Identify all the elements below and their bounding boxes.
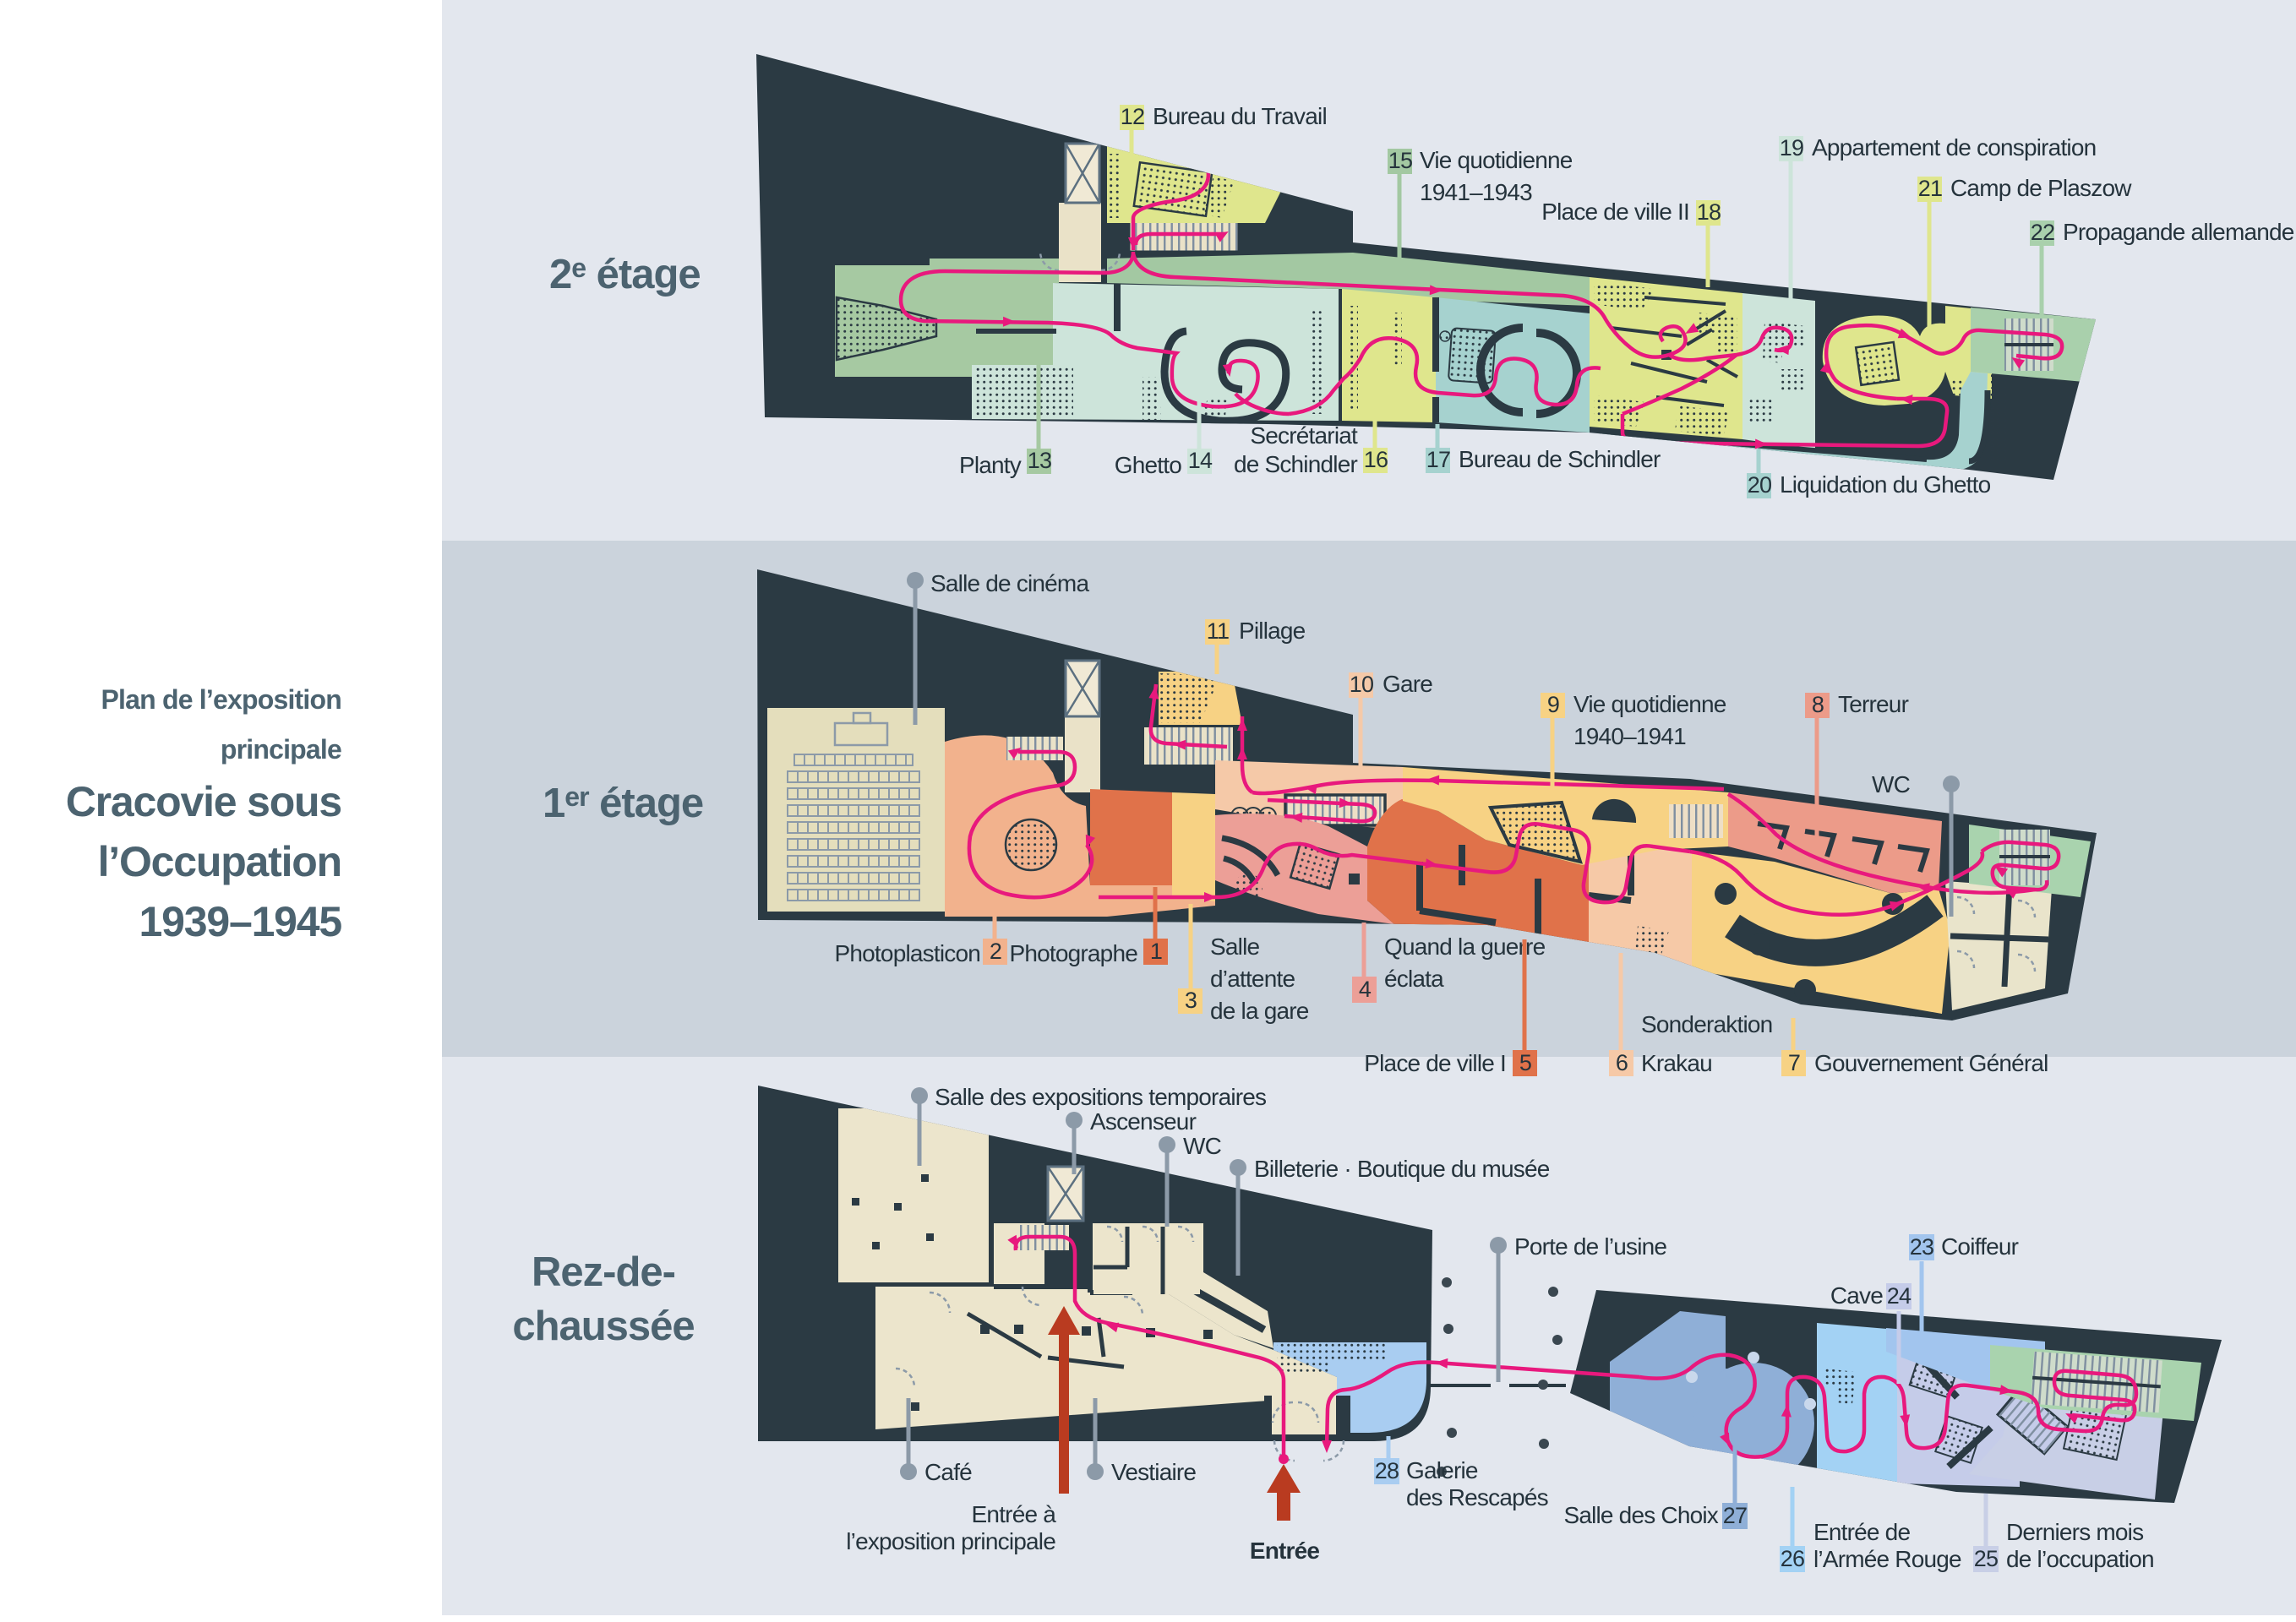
svg-text:5: 5 [1519, 1050, 1531, 1075]
svg-text:WC: WC [1183, 1133, 1222, 1159]
svg-text:éclata: éclata [1384, 966, 1444, 992]
svg-text:Cave: Cave [1830, 1282, 1883, 1309]
svg-text:26: 26 [1781, 1546, 1804, 1571]
svg-text:Billeterie · Boutique du musée: Billeterie · Boutique du musée [1254, 1156, 1550, 1182]
svg-text:14: 14 [1188, 448, 1213, 473]
svg-text:l’Armée Rouge: l’Armée Rouge [1813, 1546, 1961, 1572]
svg-text:Salle: Salle [1210, 933, 1259, 960]
svg-text:l’Occupation: l’Occupation [98, 838, 341, 885]
svg-text:Entrée: Entrée [1250, 1538, 1320, 1564]
svg-text:de la gare: de la gare [1210, 998, 1309, 1024]
svg-text:Galerie: Galerie [1406, 1457, 1478, 1483]
svg-text:8: 8 [1812, 692, 1824, 717]
svg-text:chaussée: chaussée [512, 1304, 694, 1349]
svg-text:Vie quotidienne: Vie quotidienne [1420, 147, 1573, 173]
svg-text:12: 12 [1121, 104, 1144, 129]
svg-text:Ascenseur: Ascenseur [1090, 1108, 1197, 1135]
svg-text:Salle des expositions temporai: Salle des expositions temporaires [935, 1084, 1266, 1110]
svg-text:Plan de l’exposition: Plan de l’exposition [101, 684, 341, 715]
svg-text:Coiffeur: Coiffeur [1941, 1233, 2019, 1260]
svg-text:Camp de Plaszow: Camp de Plaszow [1950, 175, 2132, 201]
svg-text:Place de ville II: Place de ville II [1541, 199, 1689, 225]
svg-text:Vestiaire: Vestiaire [1111, 1459, 1196, 1485]
svg-text:Ghetto: Ghetto [1115, 452, 1181, 478]
svg-text:Propagande allemande: Propagande allemande [2063, 219, 2294, 245]
svg-text:Terreur: Terreur [1838, 691, 1909, 717]
svg-text:17: 17 [1426, 447, 1450, 472]
svg-text:Bureau du Travail: Bureau du Travail [1153, 103, 1327, 129]
svg-text:Planty: Planty [959, 452, 1022, 478]
svg-text:23: 23 [1910, 1234, 1933, 1260]
svg-text:2: 2 [990, 939, 1001, 964]
svg-text:WC: WC [1872, 771, 1911, 797]
svg-text:Rez-de-: Rez-de- [532, 1249, 675, 1295]
svg-text:1941–1943: 1941–1943 [1420, 179, 1532, 205]
svg-text:6: 6 [1616, 1050, 1628, 1075]
svg-text:Gare: Gare [1383, 671, 1432, 697]
svg-text:de l’occupation: de l’occupation [2006, 1546, 2154, 1572]
svg-text:Quand la guerre: Quand la guerre [1384, 933, 1546, 960]
svg-text:Sonderaktion: Sonderaktion [1641, 1011, 1772, 1037]
svg-text:21: 21 [1918, 176, 1942, 201]
svg-text:19: 19 [1780, 135, 1803, 161]
svg-text:d’attente: d’attente [1210, 966, 1295, 992]
svg-text:Liquidation du Ghetto: Liquidation du Ghetto [1780, 471, 1991, 498]
svg-text:18: 18 [1697, 199, 1721, 225]
svg-text:9: 9 [1547, 692, 1559, 717]
svg-text:Vie quotidienne: Vie quotidienne [1573, 691, 1726, 717]
svg-text:Place de ville I: Place de ville I [1364, 1050, 1506, 1076]
svg-text:15: 15 [1388, 148, 1412, 173]
svg-text:16: 16 [1364, 447, 1388, 472]
svg-text:11: 11 [1207, 618, 1229, 644]
svg-text:Photoplasticon: Photoplasticon [835, 940, 980, 966]
svg-text:Krakau: Krakau [1641, 1050, 1712, 1076]
svg-text:1939–1945: 1939–1945 [139, 898, 342, 945]
svg-text:Salle de cinéma: Salle de cinéma [930, 570, 1089, 596]
svg-text:Cracovie sous: Cracovie sous [66, 778, 341, 825]
svg-text:24: 24 [1887, 1283, 1912, 1309]
svg-text:Derniers mois: Derniers mois [2006, 1519, 2143, 1545]
svg-text:1940–1941: 1940–1941 [1573, 723, 1686, 749]
svg-text:Bureau de Schindler: Bureau de Schindler [1459, 446, 1661, 472]
svg-text:principale: principale [221, 734, 341, 765]
svg-text:20: 20 [1748, 472, 1771, 498]
svg-text:de Schindler: de Schindler [1234, 451, 1358, 477]
svg-text:4: 4 [1359, 977, 1372, 1002]
svg-text:27: 27 [1723, 1503, 1747, 1528]
svg-text:des Rescapés: des Rescapés [1406, 1484, 1548, 1510]
svg-text:Secrétariat: Secrétariat [1250, 422, 1358, 449]
svg-text:10: 10 [1350, 672, 1373, 697]
svg-text:Entrée à: Entrée à [972, 1501, 1057, 1527]
svg-text:7: 7 [1788, 1050, 1800, 1075]
svg-text:Gouvernement Général: Gouvernement Général [1814, 1050, 2048, 1076]
svg-text:25: 25 [1974, 1546, 1998, 1571]
svg-text:Porte de l’usine: Porte de l’usine [1514, 1233, 1666, 1260]
svg-text:3: 3 [1185, 988, 1197, 1013]
svg-text:Café: Café [924, 1459, 972, 1485]
svg-text:Photographe: Photographe [1009, 940, 1137, 966]
svg-text:Salle des Choix: Salle des Choix [1563, 1502, 1718, 1528]
svg-text:13: 13 [1028, 448, 1051, 473]
svg-text:1: 1 [1150, 939, 1162, 964]
svg-text:22: 22 [2031, 220, 2054, 245]
svg-text:Entrée de: Entrée de [1813, 1519, 1910, 1545]
svg-text:l’exposition principale: l’exposition principale [846, 1528, 1055, 1554]
svg-text:28: 28 [1375, 1458, 1399, 1483]
svg-text:Pillage: Pillage [1239, 618, 1306, 644]
svg-text:Appartement de conspiration: Appartement de conspiration [1812, 134, 2096, 161]
